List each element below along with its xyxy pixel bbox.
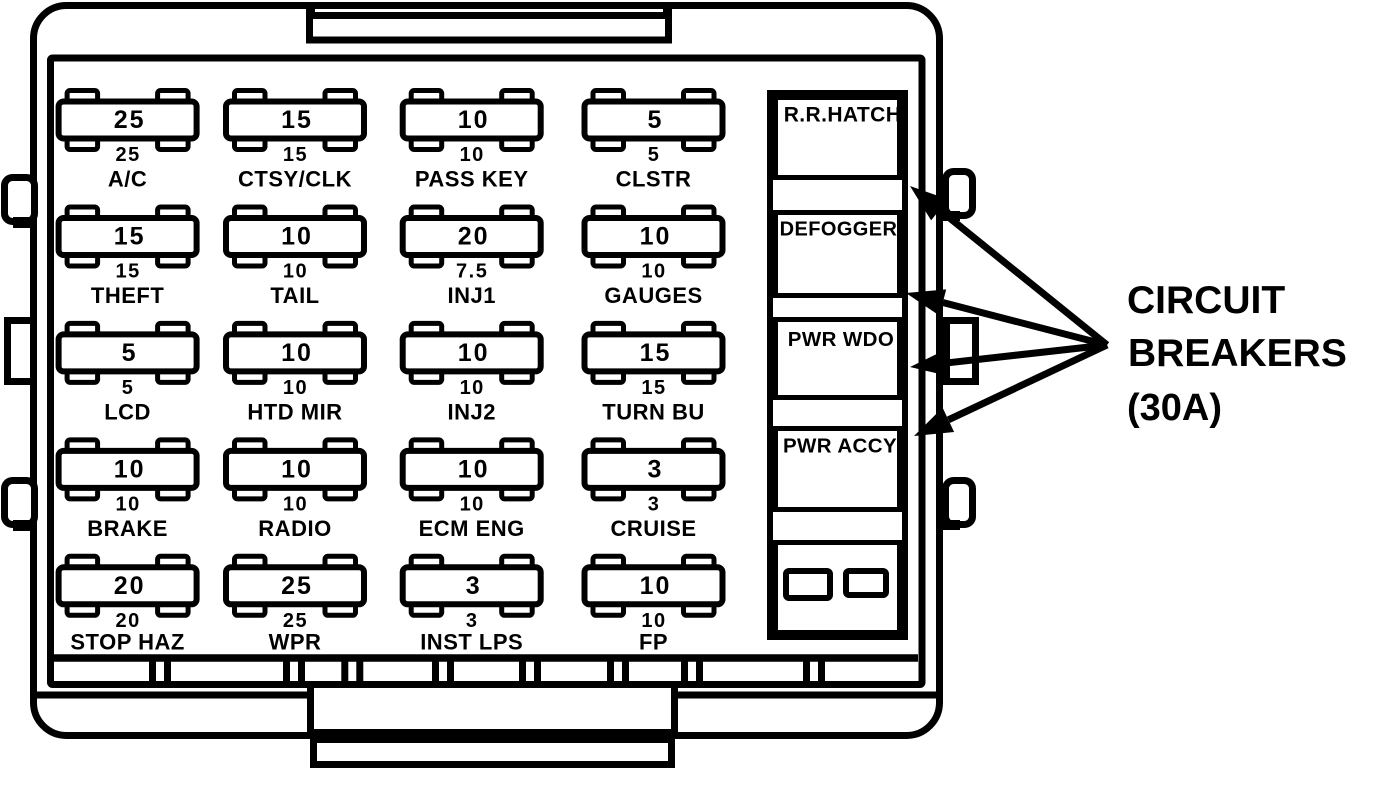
svg-text:PWR WDO: PWR WDO — [788, 328, 894, 351]
svg-text:TAIL: TAIL — [270, 283, 319, 308]
svg-text:RADIO: RADIO — [258, 516, 331, 541]
svg-text:INJ1: INJ1 — [447, 283, 495, 308]
svg-text:INST LPS: INST LPS — [420, 629, 523, 654]
svg-text:INJ2: INJ2 — [447, 399, 495, 424]
svg-text:CIRCUIT: CIRCUIT — [1127, 279, 1285, 322]
svg-text:GAUGES: GAUGES — [604, 283, 702, 308]
svg-text:10: 10 — [283, 377, 308, 399]
svg-text:15: 15 — [115, 261, 140, 283]
svg-text:10: 10 — [641, 261, 666, 283]
svg-text:LCD: LCD — [104, 399, 151, 424]
svg-text:10: 10 — [640, 223, 672, 251]
svg-text:3: 3 — [648, 493, 661, 515]
svg-text:CLSTR: CLSTR — [616, 167, 692, 192]
svg-text:10: 10 — [640, 572, 672, 600]
svg-text:10: 10 — [458, 455, 490, 483]
svg-text:THEFT: THEFT — [91, 283, 164, 308]
svg-text:5: 5 — [122, 377, 135, 399]
svg-text:15: 15 — [281, 106, 313, 134]
svg-text:3: 3 — [466, 572, 482, 600]
svg-text:15: 15 — [114, 223, 146, 251]
svg-text:10: 10 — [460, 377, 485, 399]
svg-text:15: 15 — [640, 339, 672, 367]
svg-text:CTSY/CLK: CTSY/CLK — [238, 167, 352, 192]
svg-text:10: 10 — [458, 339, 490, 367]
svg-text:10: 10 — [283, 493, 308, 515]
svg-text:HTD MIR: HTD MIR — [247, 399, 342, 424]
svg-text:10: 10 — [460, 144, 485, 166]
svg-text:WPR: WPR — [269, 629, 322, 654]
svg-text:A/C: A/C — [108, 167, 147, 192]
svg-text:CRUISE: CRUISE — [610, 516, 696, 541]
svg-text:3: 3 — [648, 455, 664, 483]
svg-text:10: 10 — [283, 261, 308, 283]
svg-text:25: 25 — [115, 144, 140, 166]
svg-text:10: 10 — [114, 455, 146, 483]
svg-text:(30A): (30A) — [1127, 387, 1222, 429]
svg-text:PASS KEY: PASS KEY — [415, 167, 529, 192]
svg-text:10: 10 — [281, 223, 313, 251]
svg-text:10: 10 — [281, 339, 313, 367]
svg-text:R.R.HATCH: R.R.HATCH — [784, 104, 902, 127]
svg-text:10: 10 — [460, 493, 485, 515]
svg-text:7.5: 7.5 — [456, 261, 488, 283]
svg-text:10: 10 — [115, 493, 140, 515]
svg-text:20: 20 — [114, 572, 146, 600]
svg-text:10: 10 — [281, 455, 313, 483]
svg-text:ECM ENG: ECM ENG — [419, 516, 525, 541]
svg-text:25: 25 — [281, 572, 313, 600]
svg-text:15: 15 — [283, 144, 308, 166]
svg-text:STOP HAZ: STOP HAZ — [70, 629, 184, 654]
svg-text:15: 15 — [641, 377, 666, 399]
svg-text:BRAKE: BRAKE — [87, 516, 168, 541]
svg-text:BREAKERS: BREAKERS — [1128, 332, 1347, 375]
svg-text:5: 5 — [648, 106, 664, 134]
svg-text:10: 10 — [458, 106, 490, 134]
svg-text:FP: FP — [639, 629, 668, 654]
svg-text:25: 25 — [114, 106, 146, 134]
svg-text:20: 20 — [458, 223, 490, 251]
svg-text:PWR ACCY: PWR ACCY — [783, 435, 897, 458]
svg-text:TURN BU: TURN BU — [602, 399, 705, 424]
svg-text:DEFOGGER: DEFOGGER — [780, 219, 898, 241]
svg-text:5: 5 — [648, 144, 661, 166]
svg-text:5: 5 — [122, 339, 138, 367]
